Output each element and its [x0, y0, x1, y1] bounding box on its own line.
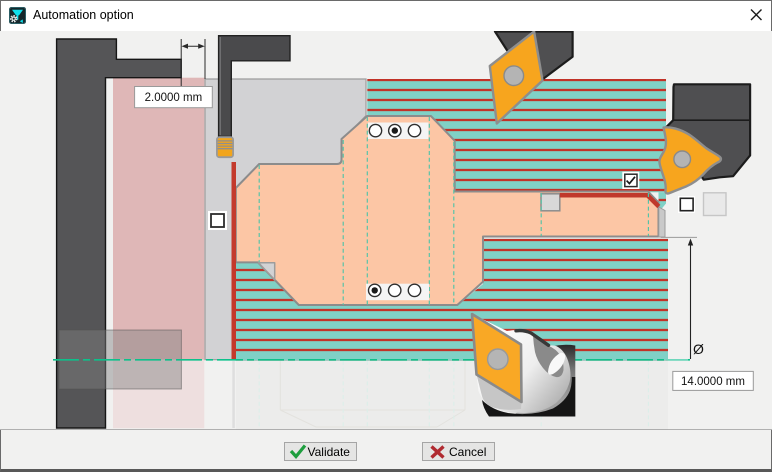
svg-text:Ø: Ø — [693, 341, 704, 357]
svg-text:2.0000 mm: 2.0000 mm — [145, 92, 203, 104]
svg-text:14.0000 mm: 14.0000 mm — [681, 376, 745, 388]
